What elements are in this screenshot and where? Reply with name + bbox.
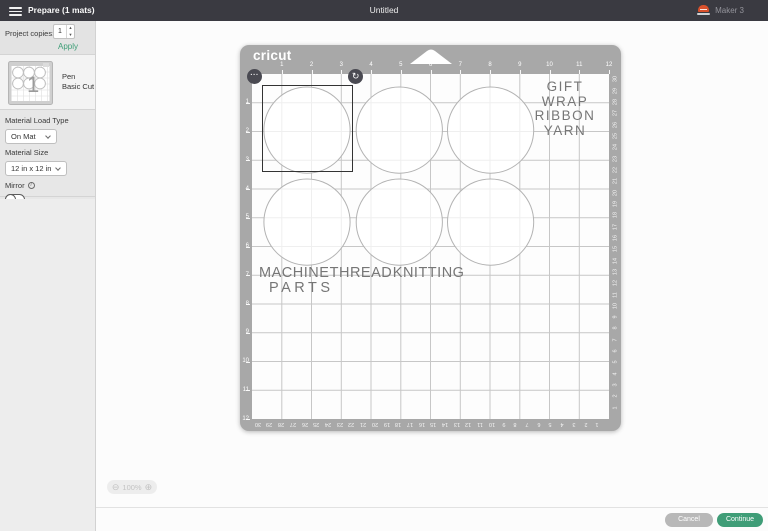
text-object-gift-wrap-ribbon-yarn[interactable]: GIFT WRAP RIBBON YARN [525, 80, 605, 138]
top-bar: Prepare (1 mats) Untitled Maker 3 [0, 0, 768, 21]
zoom-control[interactable]: ⊖ 100% ⊕ [107, 480, 157, 494]
ruler-label: 13 [613, 266, 619, 277]
ruler-label: 26 [613, 119, 619, 130]
ruler-label: 3 [613, 380, 619, 391]
selection-bounding-box[interactable]: ··· ↻ [262, 85, 353, 172]
mat-tool-label: Pen [62, 72, 94, 82]
material-settings-section: Material Load Type On Mat Material Size … [0, 110, 95, 197]
ruler-label: 19 [381, 421, 393, 427]
ruler-bottom-cm: 3029282726252423222120191817161514131211… [252, 420, 609, 431]
pen-circle-shape[interactable] [356, 87, 442, 173]
footer-bar: Cancel Continue [96, 507, 768, 531]
project-copies-value[interactable]: 1 [54, 25, 66, 38]
ruler-label: 5 [544, 421, 556, 427]
ruler-label: 11 [474, 421, 486, 427]
ruler-label: 7 [452, 62, 468, 68]
zoom-out-icon[interactable]: ⊖ [112, 481, 120, 493]
project-copies-section: Project copies: 1 ▲ ▼ Apply [0, 21, 95, 55]
info-icon[interactable]: i [28, 182, 35, 189]
ruler-label: 29 [613, 85, 619, 96]
stepper-down-icon[interactable]: ▼ [67, 32, 74, 39]
chevron-down-icon [45, 133, 51, 139]
cricut-brand-logo: cricut [253, 48, 292, 63]
material-size-value: 12 in x 12 in [11, 164, 51, 173]
ruler-label: 8 [613, 323, 619, 334]
ruler-label: 24 [613, 142, 619, 153]
sidebar-empty-area [0, 199, 95, 531]
mat-thumbnail: 1 [8, 61, 53, 105]
ruler-left-inches: 123456789101112 [240, 74, 250, 419]
ruler-label: 23 [334, 421, 346, 427]
zoom-level: 100% [122, 483, 141, 492]
mat-grid: GIFT WRAP RIBBON YARN MACHINE THREAD KNI… [252, 74, 609, 419]
ruler-label: 28 [275, 421, 287, 427]
ruler-label: 24 [322, 421, 334, 427]
ruler-label: 12 [613, 278, 619, 289]
ruler-label: 30 [252, 421, 264, 427]
pen-circle-shape[interactable] [356, 179, 442, 265]
ruler-label: 16 [416, 421, 428, 427]
prepare-sidebar: Project copies: 1 ▲ ▼ Apply [0, 21, 96, 531]
ruler-label: 10 [542, 62, 558, 68]
text-line: GIFT [525, 80, 605, 95]
ruler-label: 9 [613, 312, 619, 323]
ruler-label: 4 [556, 421, 568, 427]
ruler-label: 25 [613, 131, 619, 142]
pen-circle-shape[interactable] [264, 179, 350, 265]
ruler-right-cm: 3029282726252423222120191817161514131211… [610, 74, 621, 419]
ruler-label: 10 [613, 300, 619, 311]
ruler-label: 27 [613, 108, 619, 119]
ruler-label: 2 [580, 421, 592, 427]
text-line: YARN [525, 124, 605, 139]
project-copies-input[interactable]: 1 ▲ ▼ [53, 24, 75, 39]
mat-operation-label: Basic Cut [62, 82, 94, 92]
ruler-label: 4 [613, 368, 619, 379]
ruler-label: 16 [613, 232, 619, 243]
ruler-label: 6 [533, 421, 545, 427]
ruler-label: 19 [613, 198, 619, 209]
rotate-icon[interactable]: ↻ [348, 69, 363, 84]
ruler-label: 15 [613, 244, 619, 255]
ruler-label: 21 [613, 176, 619, 187]
ruler-label: 15 [427, 421, 439, 427]
ruler-label: 9 [498, 421, 510, 427]
ruler-top-inches: 123456789101112 [252, 62, 609, 73]
cutting-mat: cricut 123456789101112 123456789101112 3… [240, 45, 621, 431]
ruler-label: 10 [486, 421, 498, 427]
ruler-label: 11 [571, 62, 587, 68]
machine-status-icon[interactable] [697, 5, 710, 17]
continue-button[interactable]: Continue [717, 513, 763, 527]
ruler-label: 2 [613, 391, 619, 402]
ruler-label: 28 [613, 97, 619, 108]
ruler-label: 2 [304, 62, 320, 68]
ruler-label: 7 [521, 421, 533, 427]
ruler-label: 20 [613, 187, 619, 198]
text-object-machine-thread-knitting[interactable]: MACHINE THREAD KNITTING [259, 265, 464, 281]
ruler-label: 17 [613, 221, 619, 232]
ruler-label: 9 [512, 62, 528, 68]
ruler-label: 30 [613, 74, 619, 85]
material-size-label: Material Size [5, 148, 90, 157]
ruler-label: 18 [392, 421, 404, 427]
ruler-label: 5 [393, 62, 409, 68]
ruler-label: 27 [287, 421, 299, 427]
ruler-label: 3 [568, 421, 580, 427]
ruler-label: 14 [613, 255, 619, 266]
ruler-label: 8 [509, 421, 521, 427]
ruler-label: 17 [404, 421, 416, 427]
ruler-label: 1 [274, 62, 290, 68]
ruler-label: 13 [451, 421, 463, 427]
ruler-label: 21 [357, 421, 369, 427]
text-line: RIBBON [525, 109, 605, 124]
zoom-in-icon[interactable]: ⊕ [145, 481, 153, 493]
ruler-label: 8 [482, 62, 498, 68]
material-load-type-value: On Mat [11, 132, 36, 141]
ruler-label: 29 [263, 421, 275, 427]
ruler-label: 22 [613, 165, 619, 176]
text-line: WRAP [525, 95, 605, 110]
ruler-label: 12 [462, 421, 474, 427]
project-copies-label: Project copies: [5, 29, 54, 38]
apply-button[interactable]: Apply [58, 42, 78, 51]
chevron-down-icon [55, 165, 61, 171]
ruler-label: 14 [439, 421, 451, 427]
ruler-label: 5 [613, 357, 619, 368]
mat-number-badge: 1 [27, 72, 39, 97]
mirror-label: Mirror [5, 181, 25, 190]
ruler-label: 22 [345, 421, 357, 427]
ruler-label: 7 [613, 334, 619, 345]
machine-name[interactable]: Maker 3 [715, 0, 744, 21]
ruler-label: 1 [591, 421, 603, 427]
ruler-label: 6 [613, 346, 619, 357]
ruler-label: 18 [613, 210, 619, 221]
ruler-label: 6 [423, 62, 439, 68]
ruler-label: 25 [310, 421, 322, 427]
mat-thumbnail-item[interactable]: 1 Pen Basic Cut [0, 55, 95, 105]
mat-preview-canvas: cricut 123456789101112 123456789101112 3… [96, 21, 768, 531]
ruler-label: 26 [299, 421, 311, 427]
mat-list-section: 1 Pen Basic Cut [0, 55, 95, 110]
ruler-label: 3 [333, 62, 349, 68]
material-load-type-select[interactable]: On Mat [5, 129, 57, 144]
pen-circle-shape[interactable] [448, 179, 534, 265]
text-object-parts[interactable]: PARTS [269, 280, 334, 296]
material-load-type-label: Material Load Type [5, 116, 90, 125]
ruler-label: 1 [613, 402, 619, 413]
more-options-icon[interactable]: ··· [247, 69, 262, 84]
document-title: Untitled [0, 0, 768, 21]
material-size-select[interactable]: 12 in x 12 in [5, 161, 67, 176]
ruler-label: 4 [363, 62, 379, 68]
cancel-button[interactable]: Cancel [665, 513, 713, 527]
ruler-label: 23 [613, 153, 619, 164]
ruler-label: 12 [601, 62, 617, 68]
ruler-label: 11 [613, 289, 619, 300]
pen-circle-shape[interactable] [448, 87, 534, 173]
ruler-label: 20 [369, 421, 381, 427]
